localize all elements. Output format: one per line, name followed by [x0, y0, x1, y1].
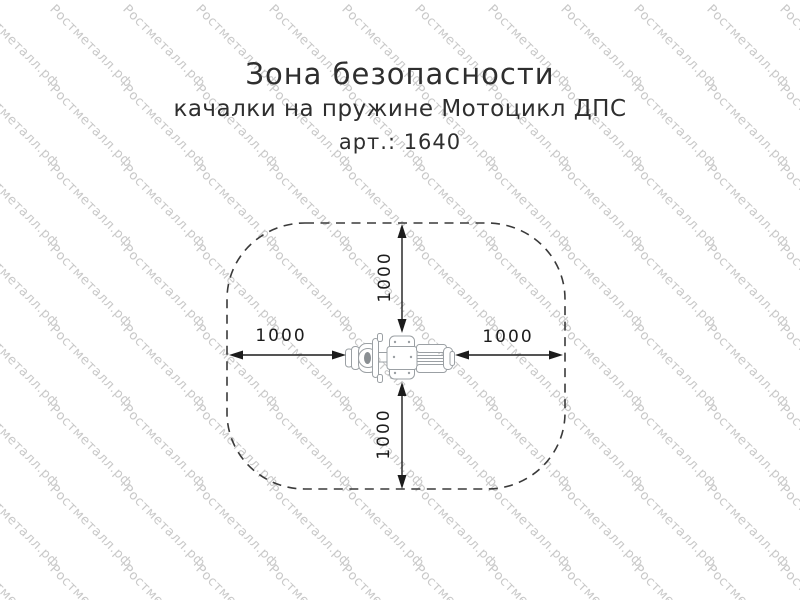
dimension-arrow-left [229, 351, 346, 360]
dimension-arrow-bottom [398, 382, 407, 489]
handlebar-grip-bottom [378, 375, 383, 383]
dimension-label-bottom: 1000 [374, 408, 394, 459]
rear-bar-bottom [417, 365, 447, 373]
title-block: Зона безопасности качалки на пружине Мот… [0, 56, 800, 158]
handlebar [373, 339, 379, 378]
equipment-top-view [346, 334, 455, 383]
dimension-label-right: 1000 [482, 327, 533, 347]
rear-tail [450, 352, 455, 366]
dimension-label-left: 1000 [255, 326, 306, 346]
rear-bar-top [417, 345, 447, 353]
handlebar-grip-top [378, 334, 383, 342]
dimension-arrow-top [398, 224, 407, 333]
base-plate-band [387, 347, 417, 370]
page-title: Зона безопасности [0, 56, 800, 92]
article-number: арт.: 1640 [0, 126, 800, 158]
dimension-label-top: 1000 [375, 251, 395, 302]
drawing-sheet: Ростметалл.рфРостметалл.рфРостметалл.рфР… [0, 0, 800, 600]
dimension-arrow-right [455, 351, 563, 360]
page-subtitle: качалки на пружине Мотоцикл ДПС [0, 92, 800, 126]
hub-center [364, 352, 371, 364]
